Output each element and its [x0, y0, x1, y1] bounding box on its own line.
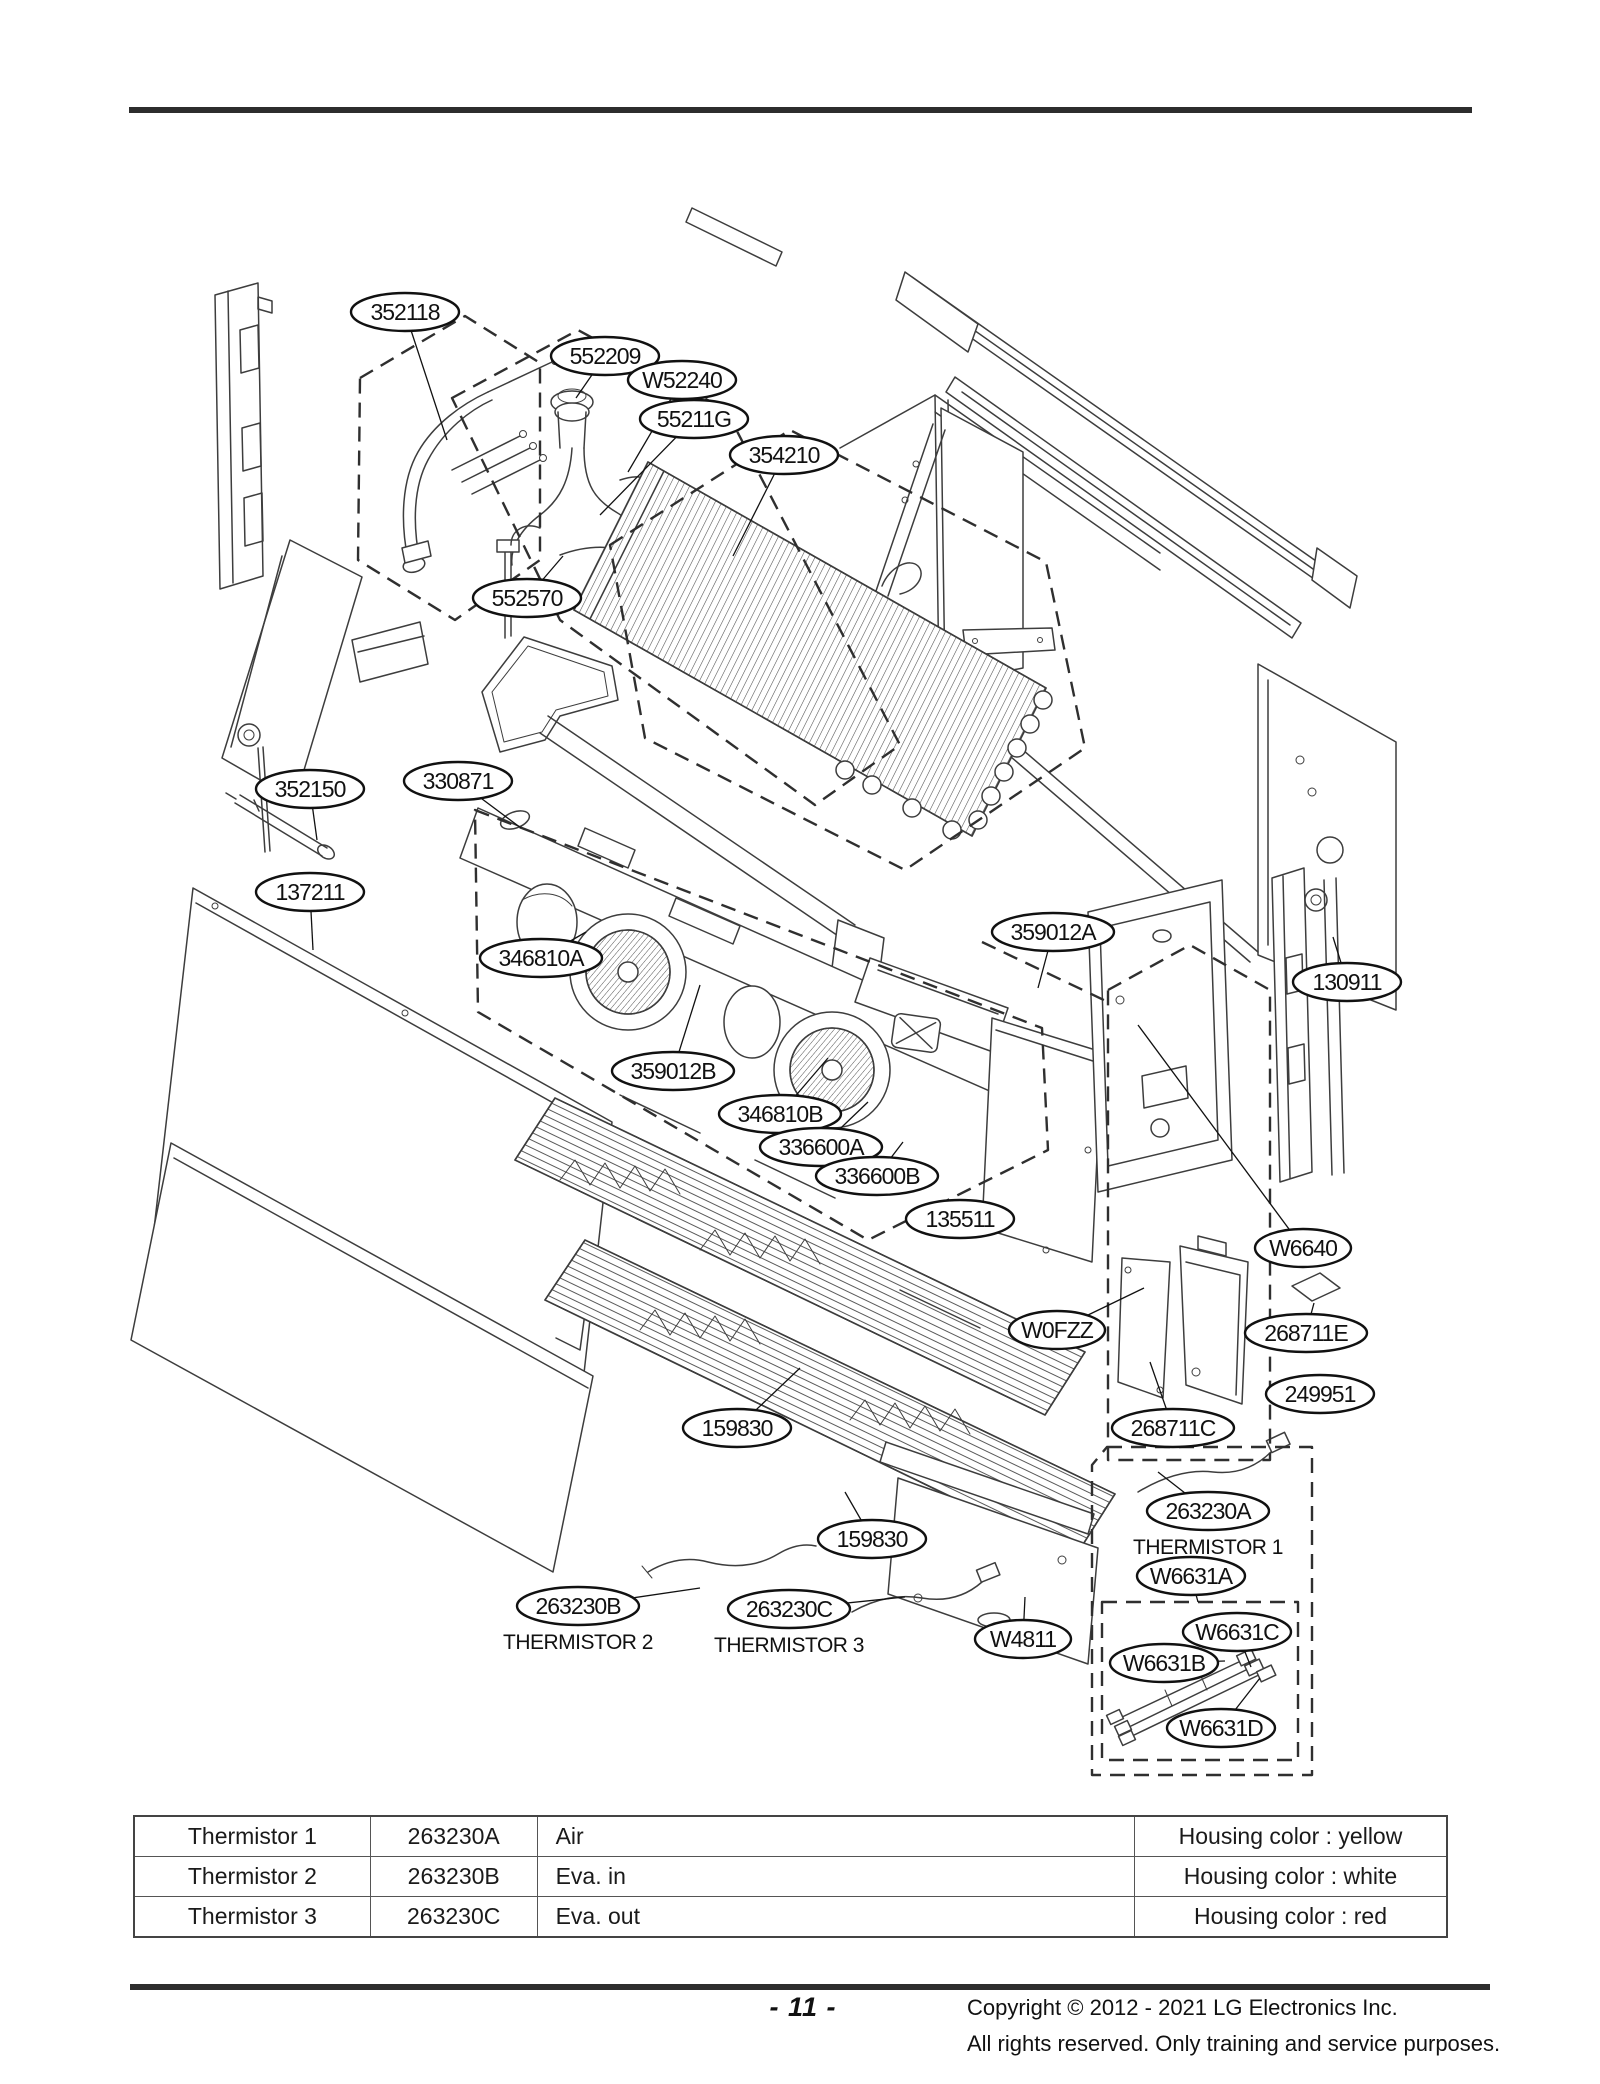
svg-text:55211G: 55211G	[657, 406, 731, 432]
svg-text:W6631A: W6631A	[1150, 1563, 1234, 1589]
svg-text:552209: 552209	[570, 343, 641, 369]
svg-text:352118: 352118	[370, 299, 439, 325]
svg-text:THERMISTOR 2: THERMISTOR 2	[503, 1631, 653, 1654]
svg-text:336600B: 336600B	[834, 1163, 920, 1189]
svg-text:135511: 135511	[925, 1206, 994, 1232]
svg-text:159830: 159830	[702, 1415, 773, 1441]
svg-text:268711E: 268711E	[1264, 1320, 1348, 1346]
left-bracket-drawing	[215, 283, 272, 589]
thermistor-name: Thermistor 3	[134, 1897, 370, 1938]
svg-text:159830: 159830	[837, 1526, 908, 1552]
thermistor-housing-color: Housing color : yellow	[1134, 1816, 1447, 1857]
thermistor-part-no: 263230C	[370, 1897, 537, 1938]
svg-text:336600A: 336600A	[778, 1134, 865, 1160]
svg-text:W6640: W6640	[1269, 1235, 1337, 1261]
svg-text:354210: 354210	[749, 442, 820, 468]
part-callout-263230B: 263230BTHERMISTOR 2	[503, 1587, 700, 1654]
thermistor-name: Thermistor 1	[134, 1816, 370, 1857]
part-callout-249951: 249951	[1266, 1375, 1374, 1413]
exploded-parts-diagram: 352118552209W5224055211G3542105525703521…	[0, 0, 1600, 2084]
part-callout-W6631A: W6631A	[1137, 1557, 1245, 1602]
svg-text:359012A: 359012A	[1010, 919, 1097, 945]
svg-text:330871: 330871	[423, 768, 494, 794]
svg-text:249951: 249951	[1285, 1381, 1356, 1407]
thermistor-part-no: 263230A	[370, 1816, 537, 1857]
part-callout-263230A: 263230ATHERMISTOR 1	[1133, 1472, 1283, 1559]
thermistor-position: Eva. in	[537, 1857, 1134, 1897]
svg-text:263230A: 263230A	[1165, 1498, 1252, 1524]
service-manual-page: 352118552209W5224055211G3542105525703521…	[0, 0, 1600, 2084]
part-callout-135511: 135511	[906, 1200, 1014, 1238]
svg-text:W6631C: W6631C	[1195, 1619, 1279, 1645]
thermistor-table: Thermistor 1 263230A Air Housing color :…	[133, 1815, 1448, 1938]
copyright-notice: Copyright © 2012 - 2021 LG Electronics I…	[967, 1990, 1507, 2062]
svg-text:352150: 352150	[275, 776, 346, 802]
thermistor-name: Thermistor 2	[134, 1857, 370, 1897]
thermistor-position: Eva. out	[537, 1897, 1134, 1938]
svg-text:263230C: 263230C	[746, 1596, 833, 1622]
table-row-thermistor-1: Thermistor 1 263230A Air Housing color :…	[134, 1816, 1447, 1857]
part-callout-268711E: 268711E	[1245, 1303, 1367, 1352]
part-callout-263230C: 263230CTHERMISTOR 3	[714, 1590, 905, 1657]
svg-text:130911: 130911	[1312, 969, 1381, 995]
svg-text:346810A: 346810A	[498, 945, 585, 971]
table-row-thermistor-2: Thermistor 2 263230B Eva. in Housing col…	[134, 1857, 1447, 1897]
svg-text:263230B: 263230B	[535, 1593, 621, 1619]
page-number: - 11 -	[733, 1992, 873, 2023]
svg-text:137211: 137211	[275, 879, 344, 905]
svg-text:346810B: 346810B	[737, 1101, 823, 1127]
svg-text:W4811: W4811	[990, 1626, 1056, 1652]
svg-text:359012B: 359012B	[630, 1058, 716, 1084]
thermistor-part-no: 263230B	[370, 1857, 537, 1897]
thermistor-housing-color: Housing color : white	[1134, 1857, 1447, 1897]
thermistor-position: Air	[537, 1816, 1134, 1857]
svg-text:W52240: W52240	[642, 367, 722, 393]
part-callout-352150: 352150	[256, 770, 364, 840]
svg-text:268711C: 268711C	[1131, 1415, 1216, 1441]
copyright-line-2: All rights reserved. Only training and s…	[967, 2026, 1507, 2062]
svg-text:W0FZZ: W0FZZ	[1021, 1317, 1094, 1343]
thermistor-housing-color: Housing color : red	[1134, 1897, 1447, 1938]
part-callout-352118: 352118	[351, 293, 459, 440]
front-panel-drawing	[131, 888, 612, 1572]
svg-text:THERMISTOR 1: THERMISTOR 1	[1133, 1536, 1283, 1559]
svg-text:W6631B: W6631B	[1123, 1650, 1206, 1676]
svg-text:W6631D: W6631D	[1179, 1715, 1263, 1741]
svg-text:552570: 552570	[492, 585, 563, 611]
part-callout-552570: 552570	[473, 556, 581, 617]
table-row-thermistor-3: Thermistor 3 263230C Eva. out Housing co…	[134, 1897, 1447, 1938]
copyright-line-1: Copyright © 2012 - 2021 LG Electronics I…	[967, 1990, 1507, 2026]
svg-text:THERMISTOR 3: THERMISTOR 3	[714, 1634, 864, 1657]
